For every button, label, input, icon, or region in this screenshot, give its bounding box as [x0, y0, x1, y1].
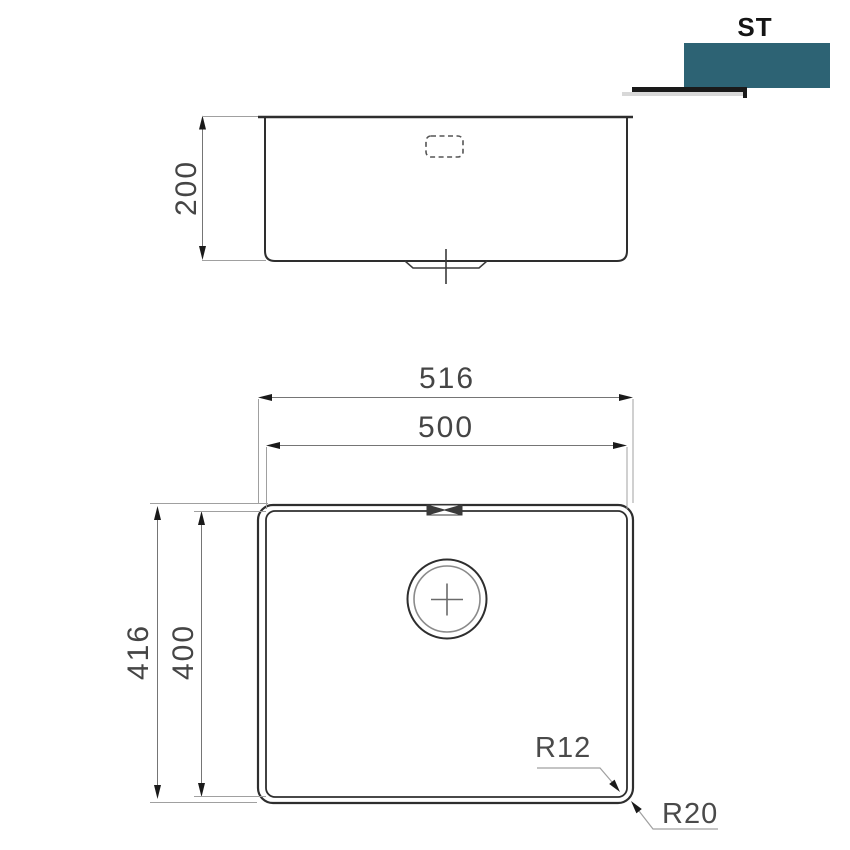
r20-label: R20 [662, 798, 718, 830]
dimension-depth: 200 [170, 116, 266, 261]
logo-text: ST [737, 12, 772, 42]
logo-underline-shadow [622, 92, 746, 96]
brand-logo: ST [622, 12, 830, 98]
plan-view: 516 500 416 [122, 362, 718, 830]
technical-drawing: ST 200 [0, 0, 850, 850]
plan-overflow-notch [427, 505, 462, 515]
dim-416-arrow-down [154, 785, 161, 799]
logo-underline-tick [743, 92, 747, 98]
front-view: 200 [170, 116, 633, 285]
r12-leader-line [537, 768, 612, 782]
dim-400-label: 400 [167, 624, 200, 680]
dim-500-arrow-right [613, 442, 627, 449]
front-overflow-dashed-rect [426, 136, 463, 157]
dim-500-arrow-left [266, 442, 280, 449]
dim-depth-label: 200 [170, 160, 203, 216]
dim-516-arrow-left [258, 394, 272, 401]
dim-516-label: 516 [419, 362, 475, 395]
plan-drain [408, 560, 487, 639]
dim-416-arrow-up [154, 506, 161, 520]
radius-callout-outer: R20 [631, 798, 718, 830]
dim-516-arrow-right [619, 394, 633, 401]
r12-label: R12 [535, 732, 591, 764]
dimension-bowl-depth: 400 [167, 511, 266, 797]
drain-center-cross [431, 584, 463, 616]
dim-400-arrow-up [198, 511, 205, 525]
dim-500-label: 500 [418, 411, 474, 444]
dim-400-arrow-down [198, 783, 205, 797]
dim-depth-arrow-up [199, 116, 206, 130]
dim-416-label: 416 [122, 624, 155, 680]
logo-underline-bar [632, 87, 747, 92]
sink-technical-drawing-page: ST 200 [0, 0, 850, 850]
dimension-bowl-width: 500 [266, 411, 627, 509]
dim-depth-arrow-down [199, 246, 206, 260]
logo-accent-block [684, 43, 830, 88]
radius-callout-inner: R12 [535, 732, 620, 792]
front-basin-outline [265, 117, 627, 261]
